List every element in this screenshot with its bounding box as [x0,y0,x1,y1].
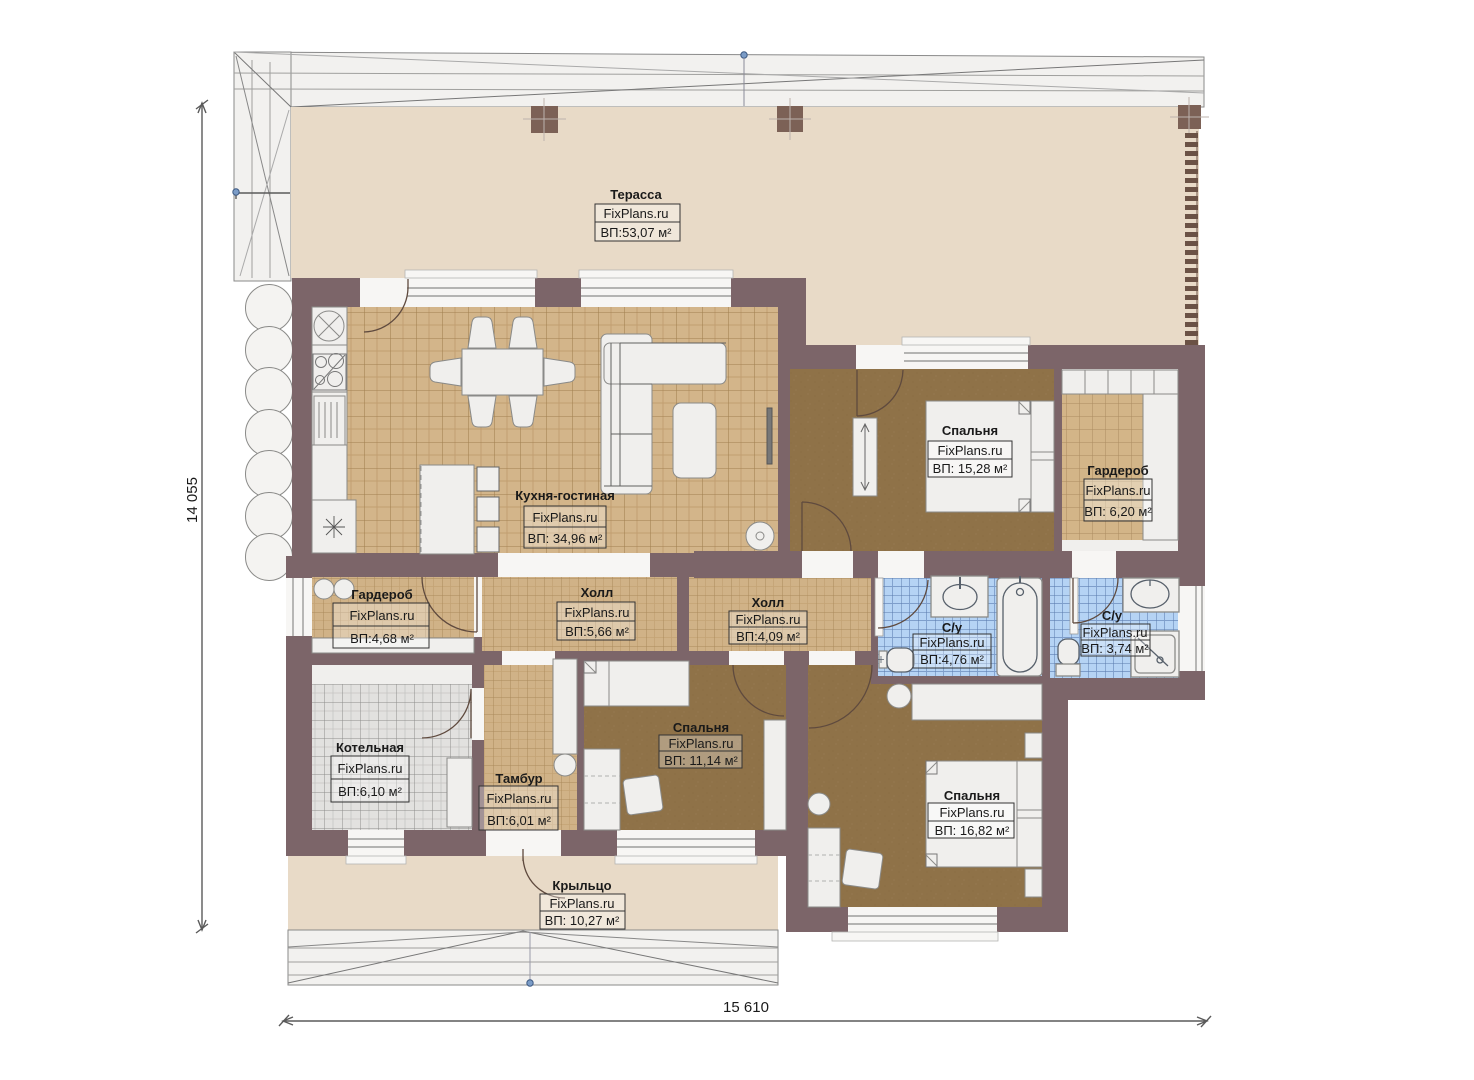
svg-text:FixPlans.ru: FixPlans.ru [668,736,733,751]
svg-text:FixPlans.ru: FixPlans.ru [549,896,614,911]
svg-text:FixPlans.ru: FixPlans.ru [1085,483,1150,498]
svg-text:ВП:6,01 м²: ВП:6,01 м² [487,813,551,828]
svg-text:ВП:4,09 м²: ВП:4,09 м² [736,629,800,644]
svg-text:Гардероб: Гардероб [1087,463,1148,478]
svg-text:14 055: 14 055 [184,477,201,523]
svg-text:FixPlans.ru: FixPlans.ru [603,206,668,221]
svg-text:Спальня: Спальня [673,720,729,735]
svg-text:ВП:6,10 м²: ВП:6,10 м² [338,784,402,799]
svg-text:ВП: 15,28 м²: ВП: 15,28 м² [933,461,1008,476]
svg-text:С/у: С/у [942,620,963,635]
svg-text:FixPlans.ru: FixPlans.ru [349,608,414,623]
svg-text:FixPlans.ru: FixPlans.ru [937,443,1002,458]
svg-text:Крыльцо: Крыльцо [552,878,611,893]
svg-text:ВП:53,07 м²: ВП:53,07 м² [600,225,672,240]
svg-text:FixPlans.ru: FixPlans.ru [564,605,629,620]
svg-text:ВП: 3,74 м²: ВП: 3,74 м² [1081,641,1149,656]
svg-text:Кухня-гостиная: Кухня-гостиная [515,488,615,503]
svg-text:С/у: С/у [1102,608,1123,623]
svg-text:ВП: 6,20 м²: ВП: 6,20 м² [1084,504,1152,519]
svg-text:Спальня: Спальня [942,423,998,438]
svg-text:Котельная: Котельная [336,740,404,755]
svg-text:ВП:4,76 м²: ВП:4,76 м² [920,652,984,667]
svg-text:FixPlans.ru: FixPlans.ru [735,612,800,627]
svg-text:Холл: Холл [581,585,614,600]
svg-text:FixPlans.ru: FixPlans.ru [1082,625,1147,640]
svg-text:FixPlans.ru: FixPlans.ru [919,635,984,650]
svg-text:Спальня: Спальня [944,788,1000,803]
svg-text:Тамбур: Тамбур [495,771,542,786]
svg-text:15 610: 15 610 [723,999,769,1016]
svg-text:FixPlans.ru: FixPlans.ru [337,761,402,776]
svg-text:ВП: 11,14 м²: ВП: 11,14 м² [664,753,738,768]
svg-text:Гардероб: Гардероб [351,587,412,602]
svg-text:Холл: Холл [752,595,785,610]
svg-text:ВП:5,66 м²: ВП:5,66 м² [565,624,629,639]
svg-text:Терасса: Терасса [610,187,662,202]
svg-text:ВП:4,68 м²: ВП:4,68 м² [350,631,414,646]
svg-text:FixPlans.ru: FixPlans.ru [486,791,551,806]
svg-text:ВП: 10,27 м²: ВП: 10,27 м² [545,913,620,928]
svg-text:FixPlans.ru: FixPlans.ru [939,805,1004,820]
svg-text:ВП: 34,96 м²: ВП: 34,96 м² [528,531,603,546]
svg-text:FixPlans.ru: FixPlans.ru [532,510,597,525]
svg-text:ВП: 16,82 м²: ВП: 16,82 м² [935,823,1010,838]
